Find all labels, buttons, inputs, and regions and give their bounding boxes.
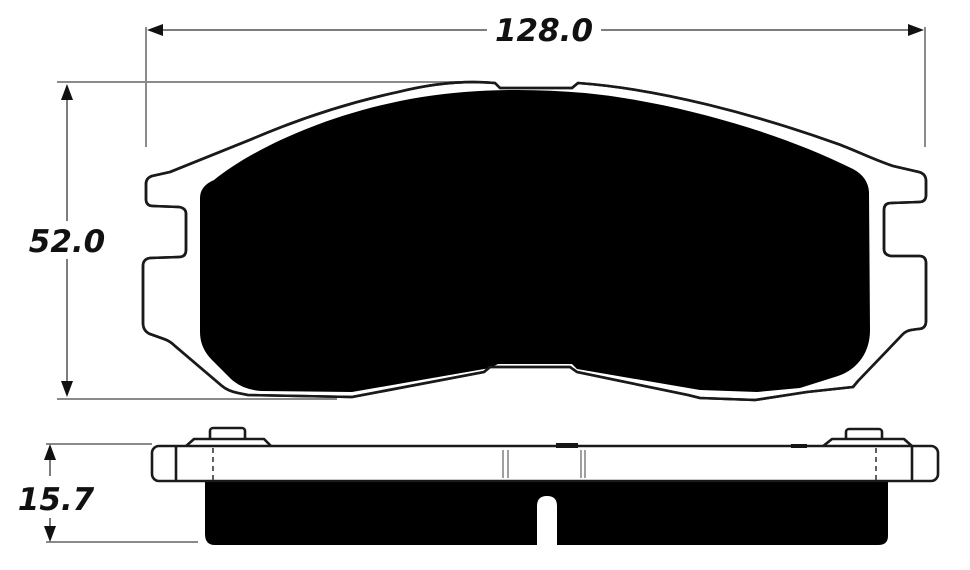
front-view bbox=[143, 82, 926, 400]
dim-thickness-arrow-bottom bbox=[44, 526, 56, 542]
right-clip bbox=[822, 429, 913, 447]
left-clip bbox=[185, 428, 272, 447]
plate-top-edge-mark-2 bbox=[791, 444, 807, 448]
plate-top-edge-mark-1 bbox=[556, 443, 578, 448]
side-backing-plate bbox=[152, 446, 938, 481]
friction-slot bbox=[537, 496, 557, 546]
friction-material bbox=[200, 90, 870, 392]
dim-height-label: 52.0 bbox=[29, 224, 106, 260]
dim-width-label: 128.0 bbox=[495, 13, 593, 49]
side-view bbox=[152, 428, 938, 546]
dim-width-arrow-right bbox=[908, 24, 924, 36]
dim-width-arrow-left bbox=[147, 24, 163, 36]
dim-thickness-arrow-top bbox=[44, 444, 56, 460]
drawing-canvas: 128.0 52.0 15.7 bbox=[0, 0, 970, 570]
dim-thickness-label: 15.7 bbox=[18, 482, 95, 518]
dim-height-arrow-bottom bbox=[61, 381, 73, 397]
brake-pad-diagram: 128.0 52.0 15.7 bbox=[0, 0, 970, 570]
dim-height-arrow-top bbox=[61, 84, 73, 100]
